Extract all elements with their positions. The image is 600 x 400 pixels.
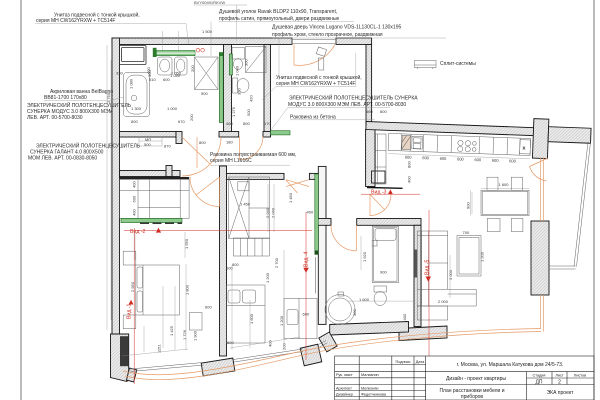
svg-text:2 950: 2 950 — [130, 281, 135, 292]
svg-text:Вид -3: Вид -3 — [371, 190, 387, 196]
svg-text:1 600: 1 600 — [499, 182, 510, 187]
svg-text:600: 600 — [227, 340, 234, 345]
svg-text:600: 600 — [509, 158, 517, 163]
svg-text:Душевая дверь Vincea Lugano VD: Душевая дверь Vincea Lugano VDS-1L130CL-… — [272, 25, 401, 31]
svg-text:Подпись: Подпись — [395, 360, 410, 364]
svg-text:2 700: 2 700 — [274, 257, 279, 268]
svg-text:1 000: 1 000 — [167, 106, 178, 111]
svg-text:Лист: Лист — [555, 374, 564, 378]
svg-text:800: 800 — [407, 161, 412, 168]
svg-text:МОДУС 3.0 800X300 МЭМ ЛЕВ. АРТ: МОДУС 3.0 800X300 МЭМ ЛЕВ. АРТ. 00-5700-… — [288, 102, 406, 108]
svg-text:2 000: 2 000 — [438, 299, 449, 304]
svg-text:600: 600 — [474, 157, 482, 162]
svg-text:ЭЛЕКТРИЧЕСКИЙ ПОЛОТЕНЦЕСУШИТЕЛ: ЭЛЕКТРИЧЕСКИЙ ПОЛОТЕНЦЕСУШИТЕЛЬ — [36, 142, 141, 150]
svg-text:800: 800 — [243, 121, 250, 126]
svg-text:1 920: 1 920 — [362, 251, 367, 262]
svg-text:1 500: 1 500 — [202, 29, 213, 34]
svg-text:170: 170 — [264, 121, 271, 126]
svg-text:серия MH CW162YRXW + TC514F: серия MH CW162YRXW + TC514F — [276, 81, 355, 87]
svg-text:1 450: 1 450 — [240, 202, 251, 207]
svg-text:460: 460 — [226, 121, 233, 126]
svg-text:400: 400 — [307, 210, 314, 215]
svg-text:800: 800 — [199, 140, 206, 145]
svg-text:460: 460 — [366, 109, 373, 114]
svg-text:Сплит-системы: Сплит-системы — [440, 61, 476, 67]
svg-text:МОМ ЛЕВ. АРТ. 00-0830-8050: МОМ ЛЕВ. АРТ. 00-0830-8050 — [28, 156, 97, 162]
svg-text:Стадия: Стадия — [533, 374, 546, 378]
svg-text:Малазнин: Малазнин — [361, 373, 379, 377]
svg-text:1 275: 1 275 — [231, 106, 236, 117]
svg-text:Дизайнер: Дизайнер — [336, 393, 353, 397]
svg-text:г. Москва, ул. Маршала Катуков: г. Москва, ул. Маршала Катукова дом 24/5… — [457, 362, 564, 368]
svg-text:1 800: 1 800 — [185, 284, 190, 295]
svg-text:1 200: 1 200 — [279, 315, 284, 326]
svg-text:600: 600 — [205, 305, 212, 310]
svg-text:Вид -1: Вид -1 — [127, 303, 133, 319]
svg-text:700: 700 — [463, 230, 470, 235]
svg-text:800: 800 — [131, 119, 138, 124]
svg-text:200: 200 — [190, 65, 195, 72]
svg-text:3 000: 3 000 — [448, 269, 453, 280]
svg-text:Вид -4: Вид -4 — [304, 251, 310, 267]
svg-text:400: 400 — [407, 176, 412, 183]
svg-text:200: 200 — [189, 114, 194, 121]
svg-text:900: 900 — [380, 269, 387, 274]
svg-text:1 300: 1 300 — [131, 106, 142, 111]
svg-text:1151: 1151 — [157, 344, 162, 353]
svg-text:420: 420 — [249, 95, 254, 102]
svg-text:2 040: 2 040 — [271, 207, 276, 218]
svg-text:500: 500 — [144, 142, 151, 147]
svg-text:Листов: Листов — [574, 374, 586, 378]
svg-text:350: 350 — [237, 88, 242, 95]
svg-text:приборов: приборов — [461, 394, 483, 400]
svg-text:серия MH CW162YRXW + TC514F: серия MH CW162YRXW + TC514F — [36, 18, 115, 24]
svg-text:1 040: 1 040 — [235, 65, 240, 76]
svg-text:1 040: 1 040 — [170, 73, 181, 78]
svg-text:1 200: 1 200 — [265, 272, 270, 283]
svg-text:600: 600 — [492, 158, 500, 163]
svg-text:900: 900 — [466, 202, 471, 209]
svg-text:ЭЛЕКТРИЧЕСКИЙ ПОЛОТЕНЦЕСУШИТЕЛ: ЭЛЕКТРИЧЕСКИЙ ПОЛОТЕНЦЕСУШИТЕЛЬ — [27, 101, 132, 109]
svg-text:1 550: 1 550 — [184, 238, 189, 249]
svg-text:Мелконян: Мелконян — [361, 387, 378, 391]
svg-text:1 600: 1 600 — [249, 313, 254, 324]
svg-text:400: 400 — [132, 181, 137, 188]
svg-text:600: 600 — [405, 154, 413, 159]
svg-text:1 080: 1 080 — [129, 78, 134, 89]
svg-text:профиль сатин, прямоугольный,: профиль сатин, прямоугольный, двери разд… — [219, 15, 340, 22]
svg-text:1 200: 1 200 — [480, 251, 485, 262]
svg-text:2: 2 — [558, 379, 561, 385]
svg-text:Дата: Дата — [416, 360, 425, 364]
svg-text:600: 600 — [422, 155, 430, 160]
svg-text:800: 800 — [380, 109, 387, 114]
svg-text:профиль хром, стекло прозрачно: профиль хром, стекло прозрачное, раздвиж… — [272, 32, 383, 38]
svg-text:600: 600 — [132, 195, 137, 202]
svg-text:Душевой уголок Ravak BLDP2 110: Душевой уголок Ravak BLDP2 110x90, Trans… — [219, 8, 337, 15]
svg-text:ЭЛЕКТРИЧЕСКИЙ ПОЛОТЕНЦЕСУШИТЕЛ: ЭЛЕКТРИЧЕСКИЙ ПОЛОТЕНЦЕСУШИТЕЛЬ СУНЕРКА — [289, 94, 418, 102]
svg-text:1 450: 1 450 — [288, 192, 293, 203]
svg-text:Вид -2: Вид -2 — [130, 229, 146, 235]
svg-text:600: 600 — [303, 312, 310, 317]
svg-text:серия MH L1616C: серия MH L1616C — [210, 158, 252, 164]
svg-text:180: 180 — [226, 140, 233, 145]
svg-text:300: 300 — [352, 309, 357, 316]
svg-text:1 726: 1 726 — [182, 329, 187, 340]
svg-text:670: 670 — [178, 119, 185, 124]
svg-text:1 600: 1 600 — [359, 297, 370, 302]
svg-text:BVY00491RKVW: BVY00491RKVW — [194, 0, 225, 5]
svg-text:Федотченкова: Федотченкова — [361, 393, 387, 397]
svg-text:300: 300 — [244, 59, 249, 66]
svg-text:330: 330 — [116, 71, 123, 76]
svg-text:400: 400 — [146, 67, 151, 74]
svg-text:Унитаз подвесной с тонкой крыш: Унитаз подвесной с тонкой крышкой, — [276, 74, 362, 81]
svg-text:BB81-1700 170x80: BB81-1700 170x80 — [44, 95, 87, 101]
svg-text:1 425: 1 425 — [169, 325, 174, 336]
svg-text:600: 600 — [440, 156, 448, 161]
svg-text:Раковина из бетона: Раковина из бетона — [290, 115, 336, 121]
svg-text:600: 600 — [457, 156, 465, 161]
svg-text:ДП: ДП — [536, 379, 543, 385]
svg-text:Архитект: Архитект — [336, 387, 352, 391]
svg-text:400: 400 — [132, 209, 137, 216]
svg-text:1 900: 1 900 — [193, 330, 198, 341]
svg-text:Рук. маст: Рук. маст — [336, 373, 353, 377]
svg-text:2 040: 2 040 — [265, 207, 270, 218]
svg-text:400: 400 — [268, 340, 273, 347]
svg-text:900: 900 — [201, 91, 208, 96]
svg-text:Вид -5: Вид -5 — [425, 259, 431, 275]
svg-text:400: 400 — [402, 313, 407, 320]
svg-text:Дизайн - проект квартиры: Дизайн - проект квартиры — [446, 375, 506, 382]
svg-text:ЭКА проект: ЭКА проект — [547, 390, 575, 396]
svg-text:ЛЕВ. АРТ. 00-5700-8030: ЛЕВ. АРТ. 00-5700-8030 — [27, 115, 83, 121]
svg-text:800: 800 — [232, 262, 239, 267]
svg-text:870: 870 — [164, 144, 171, 149]
svg-text:2 750: 2 750 — [106, 92, 111, 103]
svg-text:500: 500 — [246, 109, 251, 116]
